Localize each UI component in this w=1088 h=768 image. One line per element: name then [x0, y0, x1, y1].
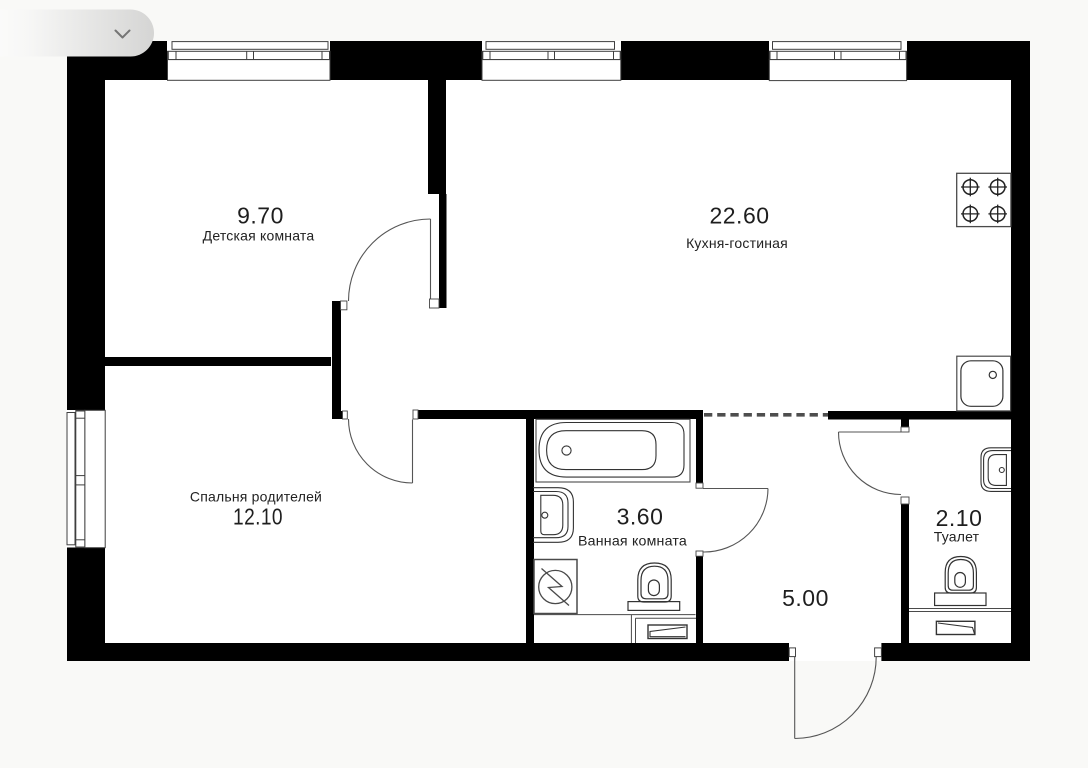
svg-text:Спальня родителей: Спальня родителей — [190, 489, 322, 505]
svg-text:9.70: 9.70 — [237, 203, 284, 229]
svg-text:Туалет: Туалет — [934, 529, 980, 545]
svg-text:2.10: 2.10 — [936, 505, 983, 531]
svg-text:Детская комната: Детская комната — [203, 228, 315, 244]
svg-text:12.10: 12.10 — [233, 504, 283, 530]
svg-text:Кухня-гостиная: Кухня-гостиная — [686, 235, 788, 251]
svg-text:5.00: 5.00 — [782, 585, 829, 611]
svg-text:Ванная комната: Ванная комната — [578, 533, 687, 549]
svg-text:22.60: 22.60 — [709, 203, 769, 229]
svg-text:3.60: 3.60 — [617, 504, 664, 530]
